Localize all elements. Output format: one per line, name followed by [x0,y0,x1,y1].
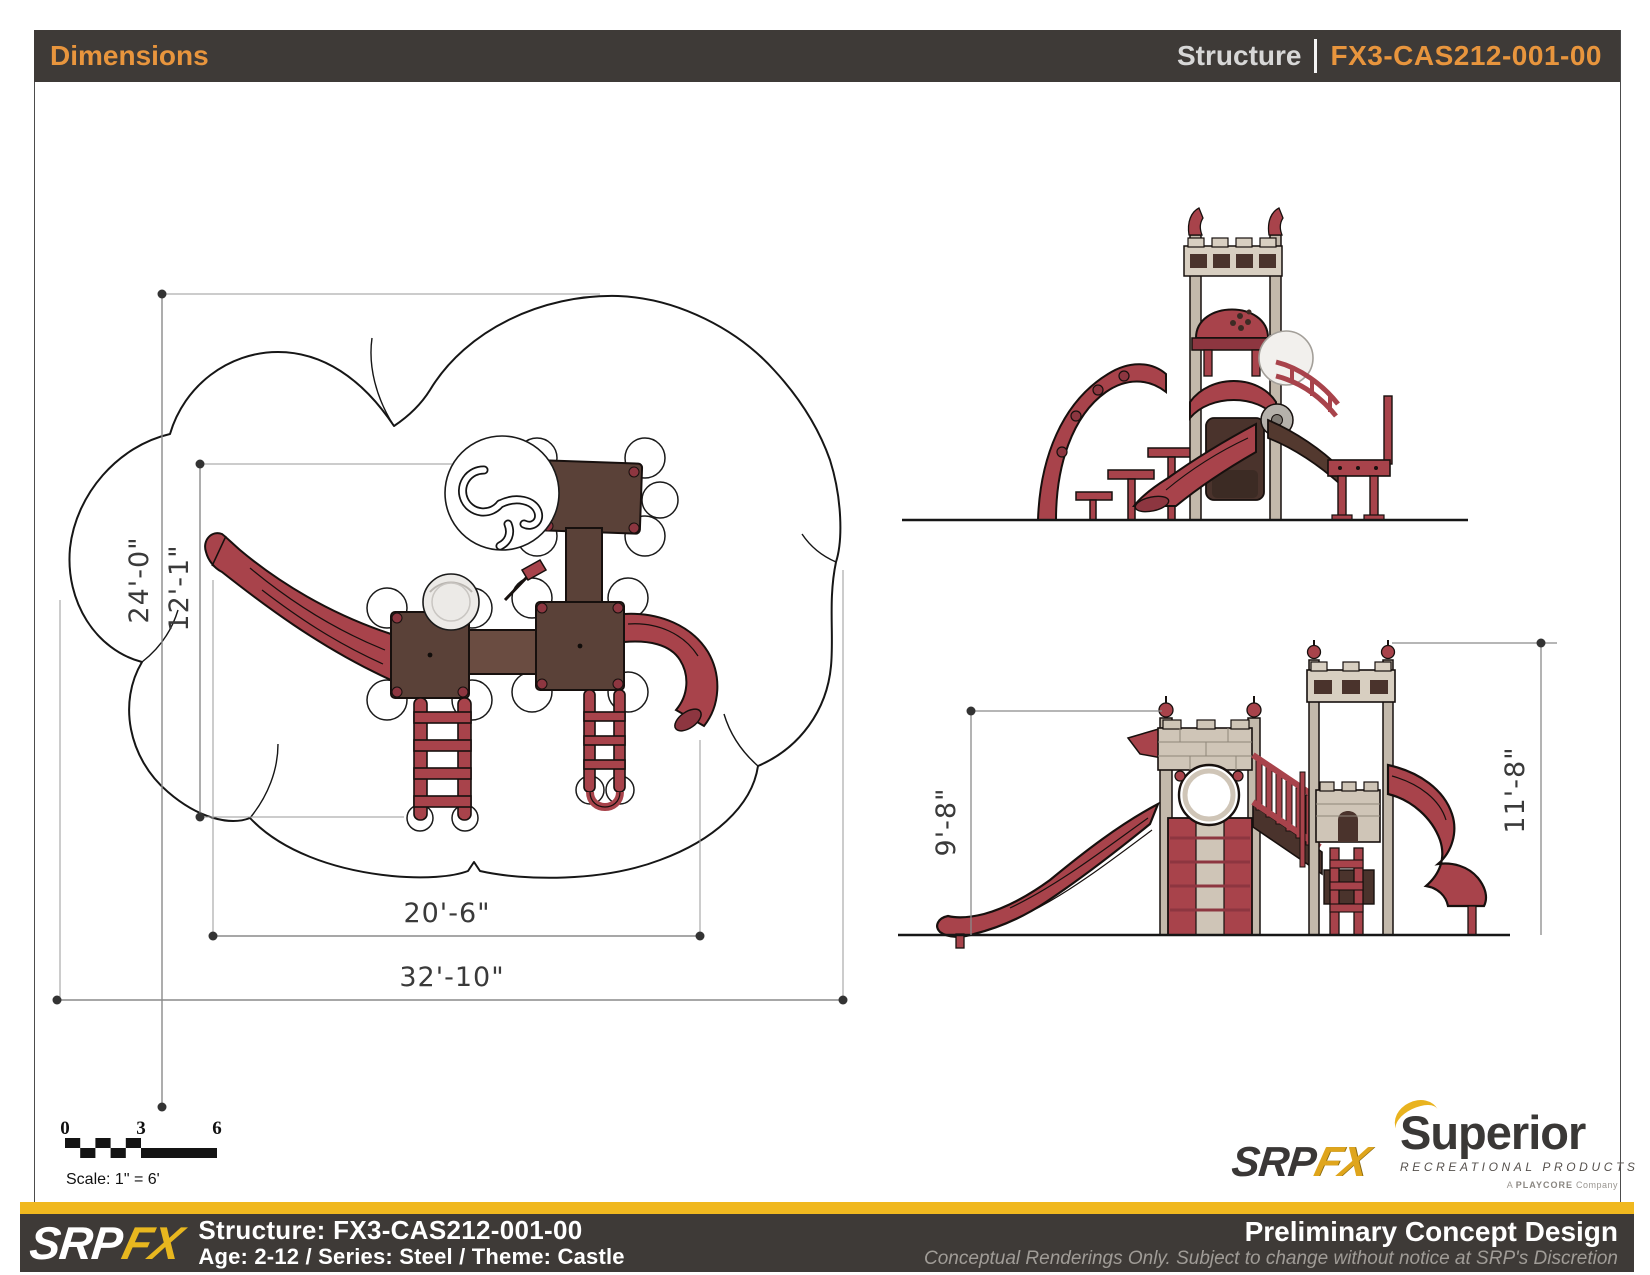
scale-label: Scale: 1" = 6' [66,1171,160,1188]
dim-20-6: 20'-6" [403,898,490,929]
dimension-sheet: Dimensions Structure FX3-CAS212-001-00 [0,0,1650,1275]
playcore-prefix: A [1507,1180,1513,1190]
plan-view: 24'-0" 12'-1" 20'-6" 32'-10" [53,290,848,1112]
fx-logo-text: FX [1310,1138,1374,1186]
srp-logo-text: SRP [1229,1138,1317,1186]
elevation-side-view [902,208,1468,520]
scale-bar-checker [65,1138,217,1158]
footer-bar: SRPFX Structure: FX3-CAS212-001-00 Age: … [20,1214,1634,1272]
crenellated-bar [1184,238,1282,276]
front-right-slide [1388,765,1486,906]
footer-disclaimer: Conceptual Renderings Only. Subject to c… [924,1248,1618,1270]
srp-footer-text: SRP [27,1214,125,1272]
accent-stripe [20,1202,1634,1214]
footer-concept-block: Preliminary Concept Design Conceptual Re… [924,1216,1618,1270]
playcore-suffix: Company [1576,1180,1618,1190]
footer-title: Preliminary Concept Design [924,1216,1618,1248]
footer-age-series-line: Age: 2-12 / Series: Steel / Theme: Castl… [198,1245,624,1270]
srpfx-logo-corner: SRPFX [1232,1138,1368,1186]
dim-24-0: 24'-0" [124,536,155,623]
scale-bar: 0 3 6 Scale: 1" = 6' [60,1118,222,1188]
fx-footer-text: FX [116,1214,187,1272]
dim-12-1: 12'-1" [164,544,195,631]
scale-tick-0: 0 [60,1118,70,1139]
scale-tick-3: 3 [136,1118,146,1139]
superior-logo: Superior RECREATIONAL PRODUCTS A PLAYCOR… [1400,1110,1618,1190]
dim-11-8: 11'-8" [1500,746,1531,833]
srpfx-logo-footer: SRPFX [30,1214,180,1272]
plan-dome [423,574,479,630]
playcore-name: PLAYCORE [1516,1180,1573,1190]
elevation-front-view: 9'-8" 11'-8" [898,639,1557,949]
front-left-slide [937,804,1158,937]
footer-structure-line: Structure: FX3-CAS212-001-00 [198,1216,624,1245]
playcore-tagline: A PLAYCORE Company [1400,1180,1618,1190]
superior-wordmark: Superior [1400,1110,1618,1156]
drawing-canvas: 24'-0" 12'-1" 20'-6" 32'-10" [0,0,1650,1275]
superior-subtitle: RECREATIONAL PRODUCTS [1400,1160,1618,1174]
dim-9-8: 9'-8" [931,788,962,857]
plan-climber-circle [445,436,559,550]
front-right-tower [1300,640,1395,935]
dim-32-10: 32'-10" [399,962,504,993]
scale-tick-6: 6 [212,1118,222,1139]
footer-structure-block: Structure: FX3-CAS212-001-00 Age: 2-12 /… [198,1216,624,1270]
